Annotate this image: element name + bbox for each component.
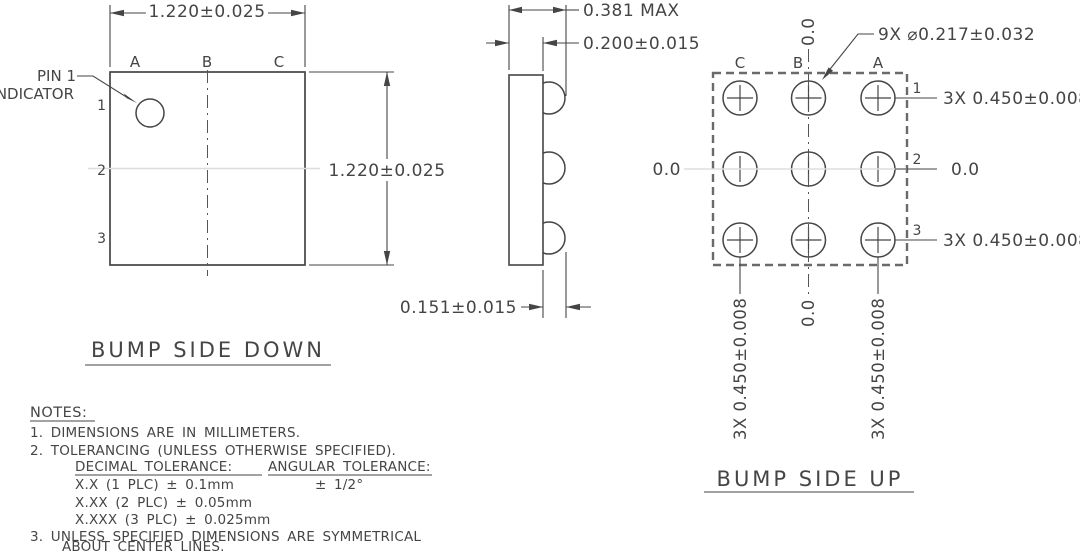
arrowhead-left — [509, 7, 522, 13]
left-datum-label: 0.0 — [652, 160, 681, 180]
side-profile-view — [486, 5, 591, 318]
col-c-pitch-label: 3X 0.450±0.008 — [731, 298, 750, 440]
dim-height-label: 1.220±0.025 — [328, 161, 445, 181]
angular-tolerance-heading: ANGULAR TOLERANCE: — [268, 459, 431, 475]
notes-heading: NOTES: — [30, 405, 87, 421]
col-label-c: C — [274, 53, 284, 71]
col-label-b: B — [793, 54, 803, 72]
col-label-c: C — [735, 54, 745, 72]
row1-pitch-label: 3X 0.450±0.008 — [943, 89, 1080, 109]
arrowhead-down — [384, 251, 390, 265]
arrowhead-left-point — [566, 304, 580, 310]
dim-bump-height-label: 0.151±0.015 — [400, 298, 517, 318]
decimal-tolerance-3plc: X.XXX (3 PLC) ± 0.025mm — [75, 512, 271, 528]
decimal-tolerance-1plc: X.X (1 PLC) ± 0.1mm — [75, 477, 234, 493]
col-label-a: A — [873, 54, 884, 72]
arrowhead-left-point — [543, 40, 557, 46]
col-label-b: B — [202, 53, 212, 71]
row-label-3: 3 — [913, 223, 922, 239]
arrowhead-left — [110, 10, 124, 16]
bump-side-up-view — [684, 34, 937, 492]
package-drawing: 1.220±0.025 A B C 1 2 3 PIN 1 INDICATOR … — [0, 0, 1080, 552]
col-a-pitch-label: 3X 0.450±0.008 — [869, 298, 888, 440]
dim-die-thickness-label: 0.200±0.015 — [583, 34, 700, 54]
row3-pitch-label: 3X 0.450±0.008 — [943, 231, 1080, 251]
decimal-tolerance-2plc: X.XX (2 PLC) ± 0.05mm — [75, 495, 252, 511]
row-label-3: 3 — [97, 231, 106, 247]
decimal-tolerance-heading: DECIMAL TOLERANCE: — [75, 459, 232, 475]
note-1: 1. DIMENSIONS ARE IN MILLIMETERS. — [30, 425, 300, 441]
arrowhead-right — [291, 10, 305, 16]
dim-width-label: 1.220±0.025 — [148, 2, 265, 22]
pin1-label-line2: INDICATOR — [0, 85, 74, 103]
col-b-datum-label: 0.0 — [799, 299, 818, 327]
bump-diameter-callout: 9X ⌀0.217±0.032 — [878, 25, 1035, 45]
row-label-2: 2 — [97, 163, 106, 179]
bump-side-down-title: BUMP SIDE DOWN — [91, 338, 325, 362]
row-label-1: 1 — [913, 81, 922, 97]
arrowhead-right — [553, 7, 566, 13]
dim-total-thickness-label: 0.381 MAX — [583, 1, 680, 21]
col-label-a: A — [130, 53, 141, 71]
row2-datum-label: 0.0 — [951, 160, 980, 180]
note-3-line2: ABOUT CENTER LINES. — [62, 539, 225, 552]
arrowhead-up — [384, 72, 390, 86]
top-datum-label: 0.0 — [799, 17, 819, 46]
pin1-label-line1: PIN 1 — [37, 67, 76, 85]
arrowhead-right-point — [495, 40, 509, 46]
note-2: 2. TOLERANCING (UNLESS OTHERWISE SPECIFI… — [30, 443, 396, 459]
row-label-2: 2 — [913, 152, 922, 168]
drawing-svg: 1.220±0.025 A B C 1 2 3 PIN 1 INDICATOR … — [0, 0, 1080, 552]
notes-block: NOTES: 1. DIMENSIONS ARE IN MILLIMETERS.… — [30, 405, 432, 552]
pin1-indicator-circle — [136, 99, 164, 127]
bump-side-up-title: BUMP SIDE UP — [717, 467, 904, 491]
die-body-outline — [509, 75, 543, 265]
bump-callout-leader — [827, 34, 874, 73]
angular-tolerance-value: ± 1/2° — [315, 477, 363, 493]
arrowhead-right-point — [529, 304, 543, 310]
row-label-1: 1 — [97, 98, 106, 114]
